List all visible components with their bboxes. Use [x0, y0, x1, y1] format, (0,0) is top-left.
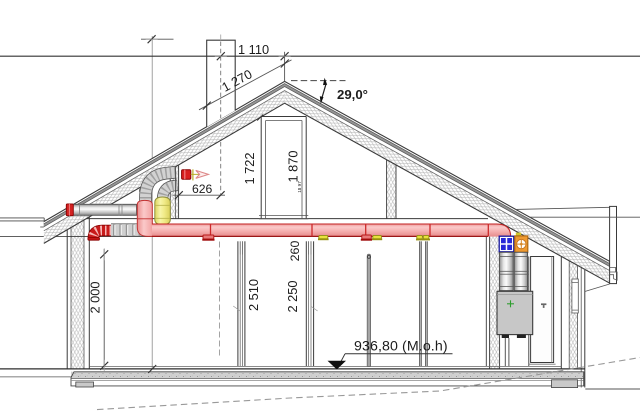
svg-text:29,0°: 29,0°	[337, 87, 368, 102]
svg-text:1 870: 1 870	[285, 150, 300, 182]
svg-text:936,80 (M.o.h): 936,80 (M.o.h)	[354, 339, 448, 355]
svg-text:1 722: 1 722	[242, 152, 257, 184]
svg-text:2 510: 2 510	[246, 279, 261, 311]
svg-text:260: 260	[288, 241, 302, 262]
svg-text:626: 626	[192, 182, 213, 196]
svg-text:2 250: 2 250	[285, 280, 300, 312]
svg-text:1 110: 1 110	[238, 42, 269, 57]
svg-text:18 97: 18 97	[297, 181, 302, 193]
svg-text:2 000: 2 000	[88, 281, 103, 313]
